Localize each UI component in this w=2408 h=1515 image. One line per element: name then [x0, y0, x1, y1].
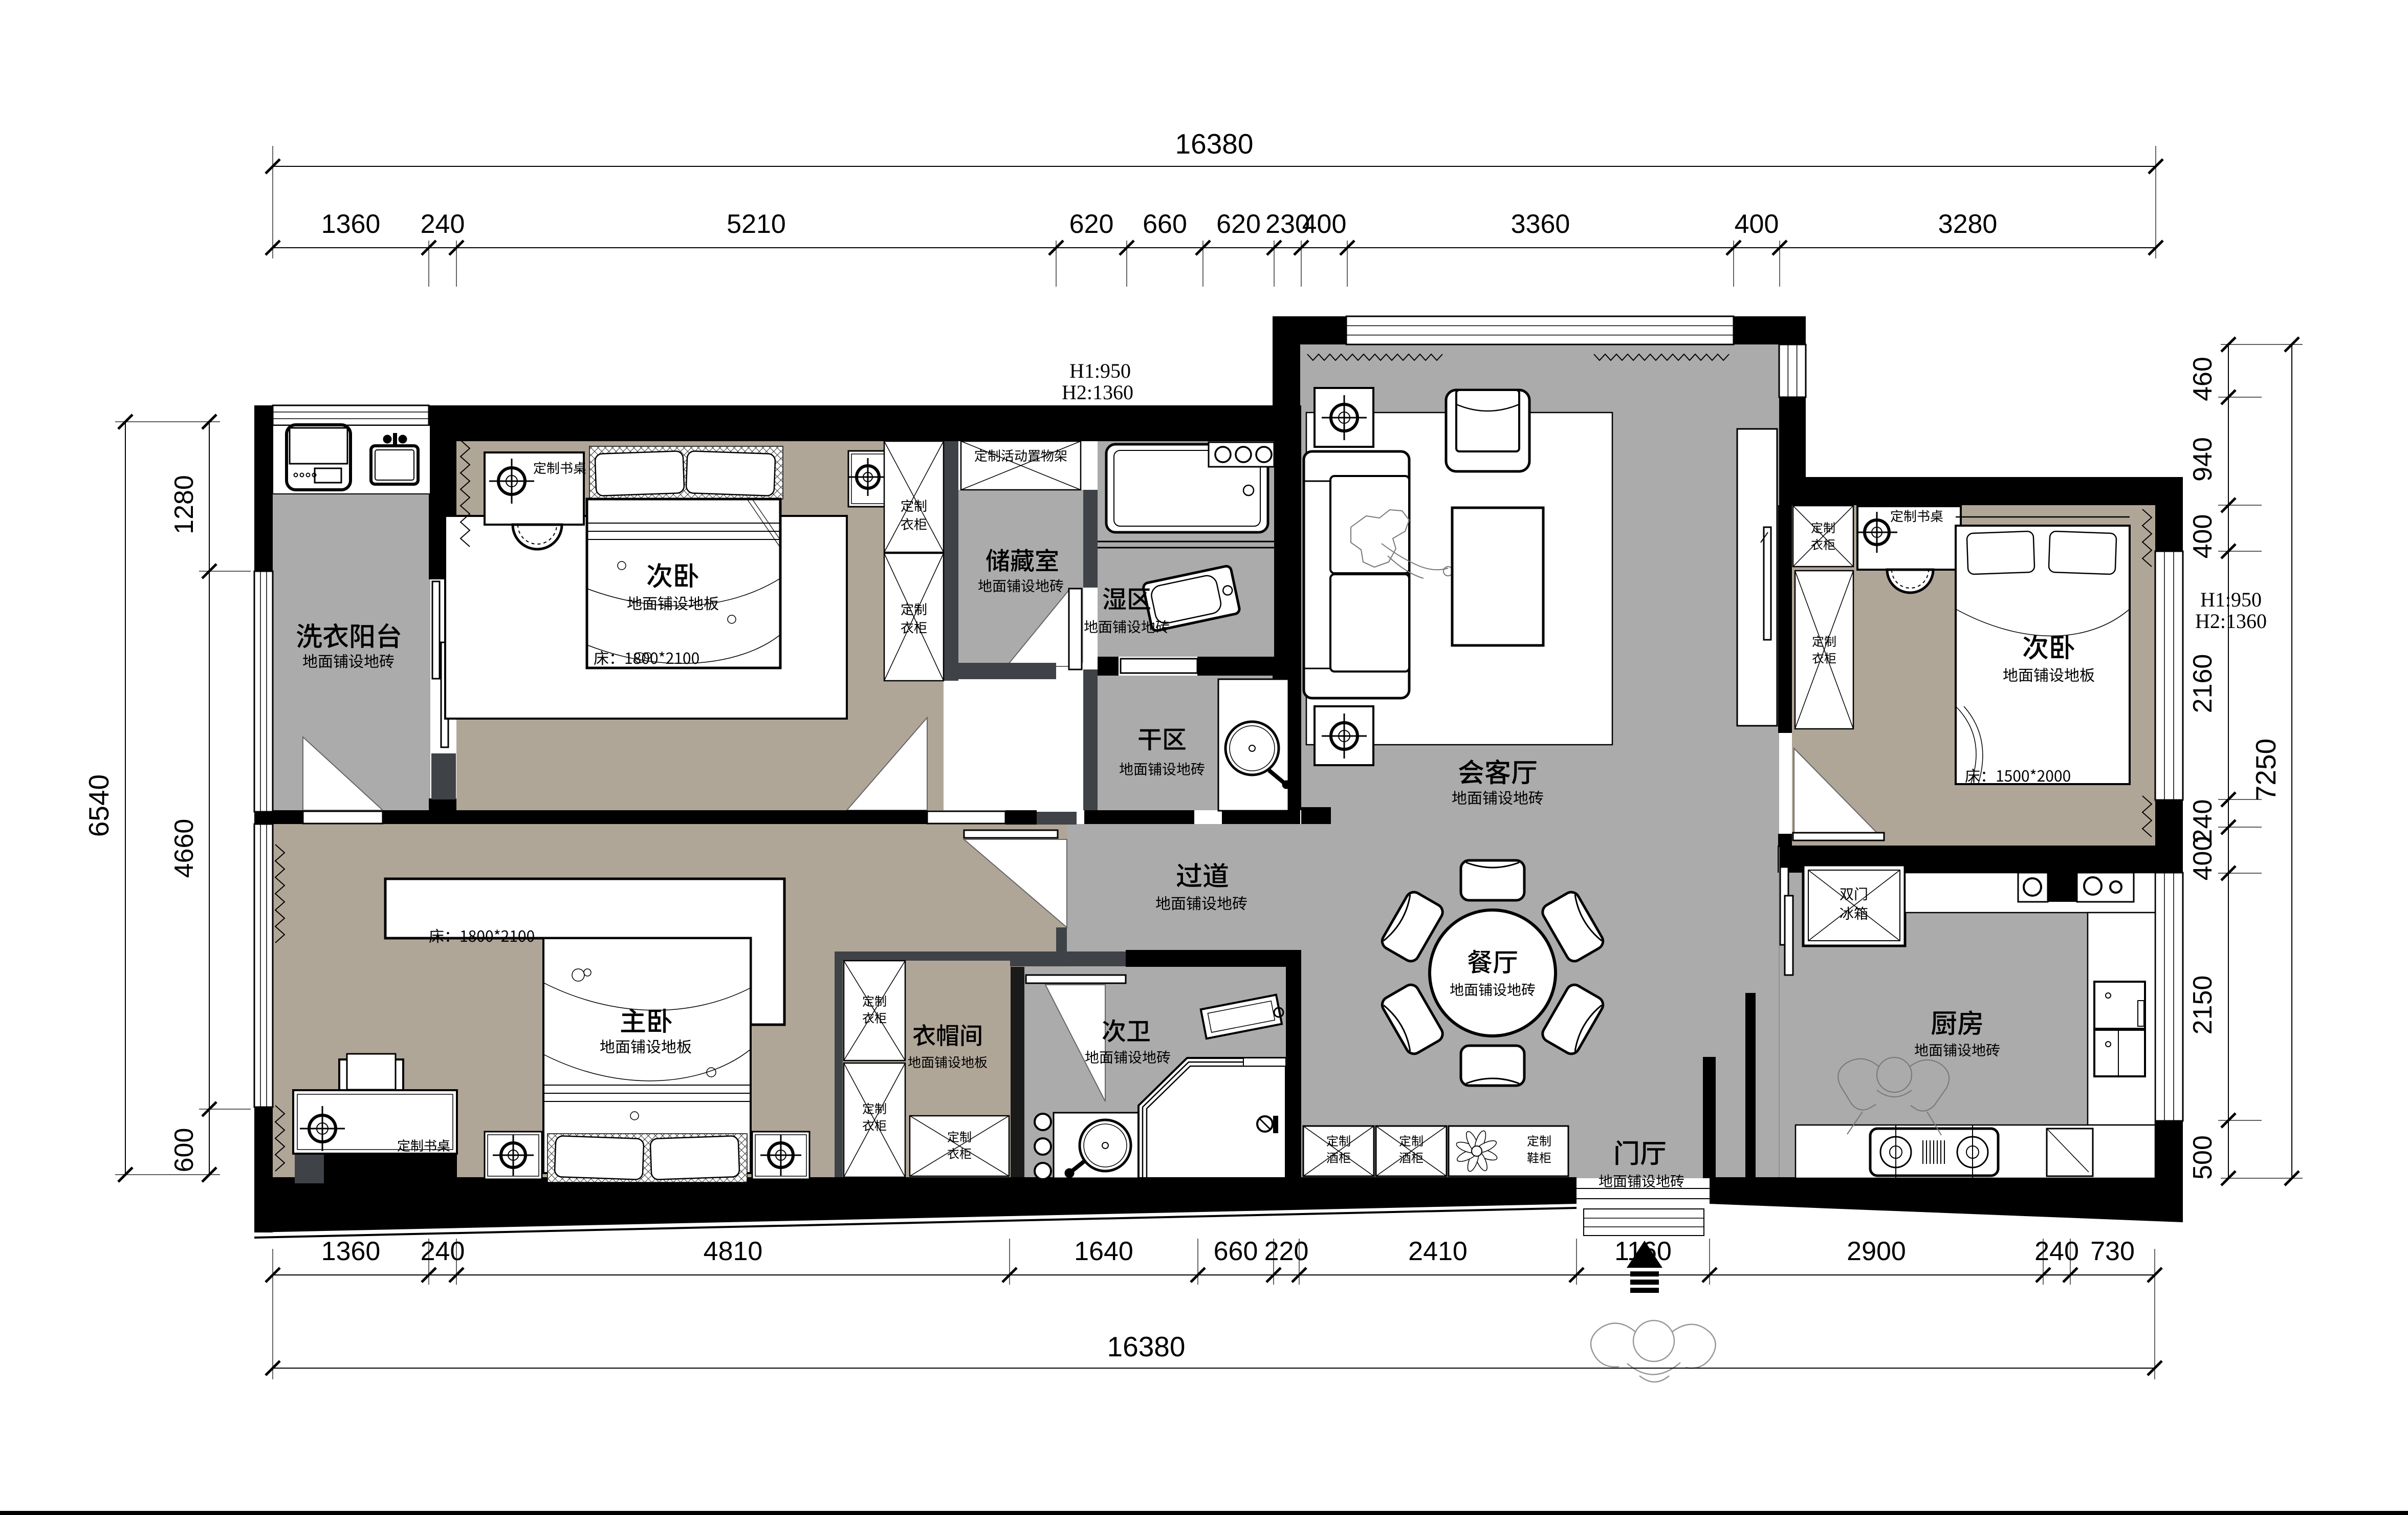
svg-text:620: 620	[1216, 209, 1261, 239]
svg-text:H2:1360: H2:1360	[1062, 381, 1133, 404]
svg-text:400: 400	[2188, 836, 2218, 881]
svg-text:940: 940	[2188, 437, 2218, 482]
svg-text:H1:950: H1:950	[1069, 359, 1131, 382]
svg-text:220: 220	[1264, 1237, 1309, 1266]
svg-text:7250: 7250	[2250, 739, 2282, 801]
svg-text:400: 400	[1302, 209, 1347, 239]
svg-text:2900: 2900	[1847, 1237, 1906, 1266]
svg-text:1360: 1360	[321, 1237, 381, 1266]
svg-text:2410: 2410	[1408, 1237, 1468, 1266]
svg-text:3360: 3360	[1511, 209, 1570, 239]
svg-text:730: 730	[2090, 1237, 2135, 1266]
svg-text:240: 240	[2034, 1237, 2079, 1266]
svg-text:H1:950: H1:950	[2200, 588, 2262, 611]
svg-text:460: 460	[2188, 357, 2218, 401]
svg-text:600: 600	[169, 1128, 199, 1173]
svg-text:660: 660	[1214, 1237, 1258, 1266]
svg-text:620: 620	[1069, 209, 1114, 239]
svg-text:400: 400	[2188, 514, 2218, 559]
svg-text:400: 400	[1735, 209, 1779, 239]
svg-text:2150: 2150	[2188, 976, 2218, 1035]
svg-text:240: 240	[421, 209, 465, 239]
svg-text:500: 500	[2188, 1135, 2218, 1180]
svg-text:1280: 1280	[169, 475, 199, 534]
svg-text:6540: 6540	[83, 774, 115, 837]
svg-text:H2:1360: H2:1360	[2195, 610, 2267, 633]
svg-text:1360: 1360	[321, 209, 381, 239]
svg-text:660: 660	[1143, 209, 1187, 239]
svg-text:3280: 3280	[1938, 209, 1998, 239]
svg-text:16380: 16380	[1107, 1331, 1186, 1362]
svg-text:2160: 2160	[2188, 654, 2218, 713]
svg-text:16380: 16380	[1175, 128, 1254, 160]
svg-text:4660: 4660	[169, 819, 199, 878]
svg-text:240: 240	[421, 1237, 465, 1266]
svg-text:1640: 1640	[1074, 1237, 1133, 1266]
svg-text:4810: 4810	[704, 1237, 763, 1266]
svg-text:5210: 5210	[727, 209, 786, 239]
svg-text:1160: 1160	[1614, 1237, 1672, 1266]
